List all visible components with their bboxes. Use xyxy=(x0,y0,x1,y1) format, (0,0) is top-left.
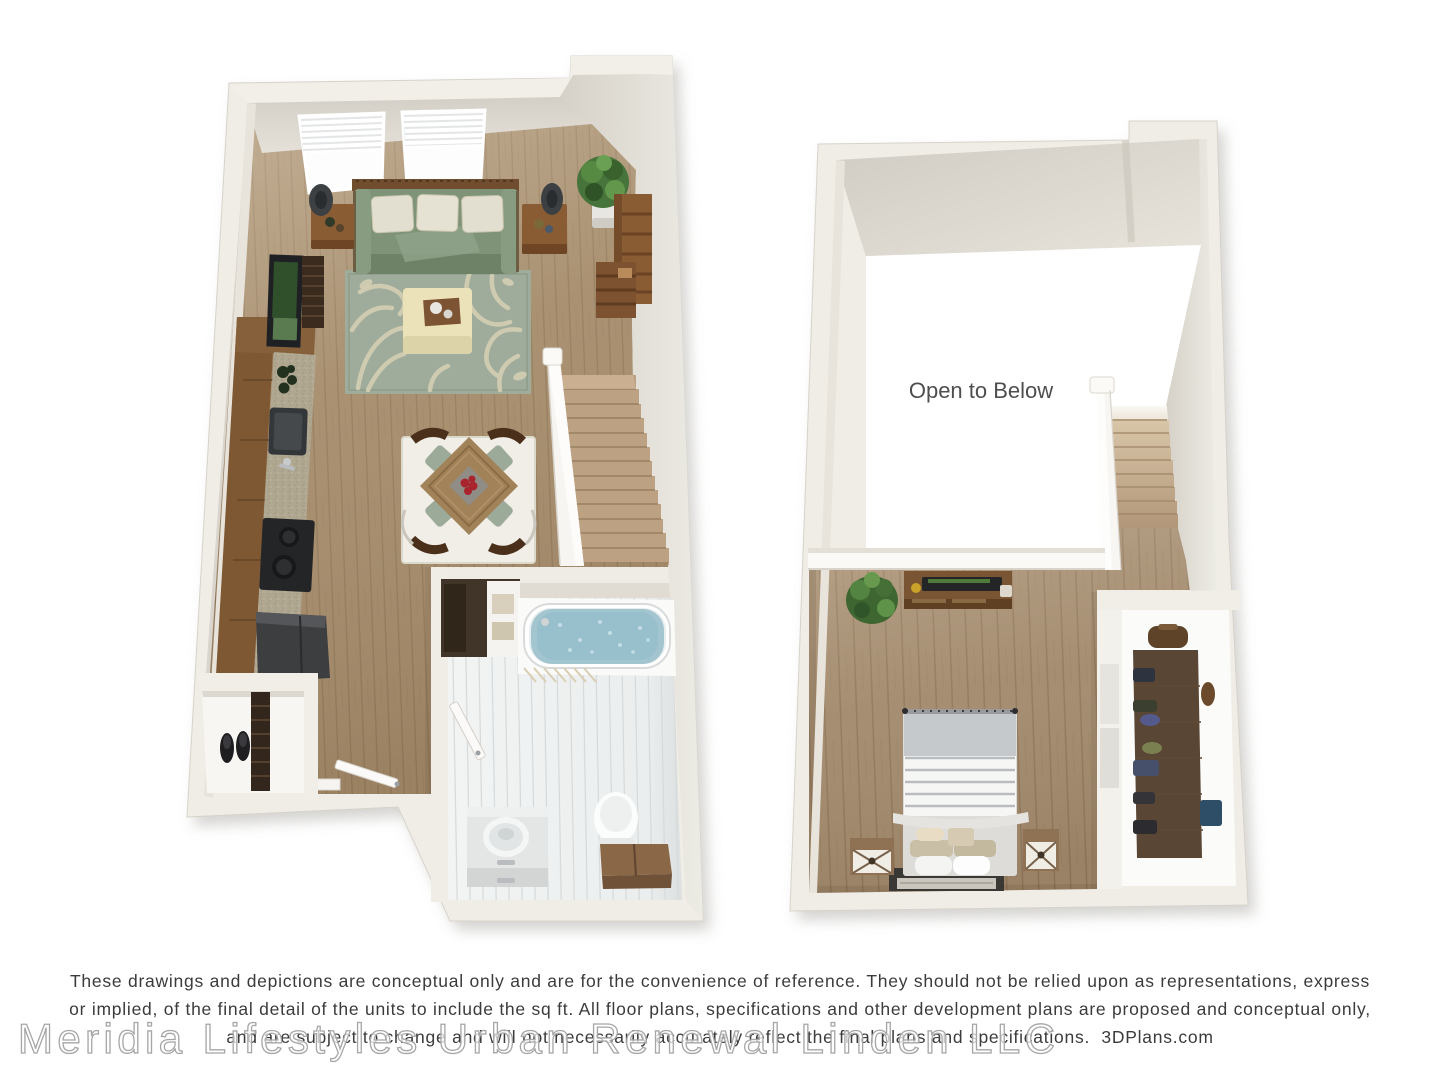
svg-text:Open to Below: Open to Below xyxy=(909,378,1053,403)
